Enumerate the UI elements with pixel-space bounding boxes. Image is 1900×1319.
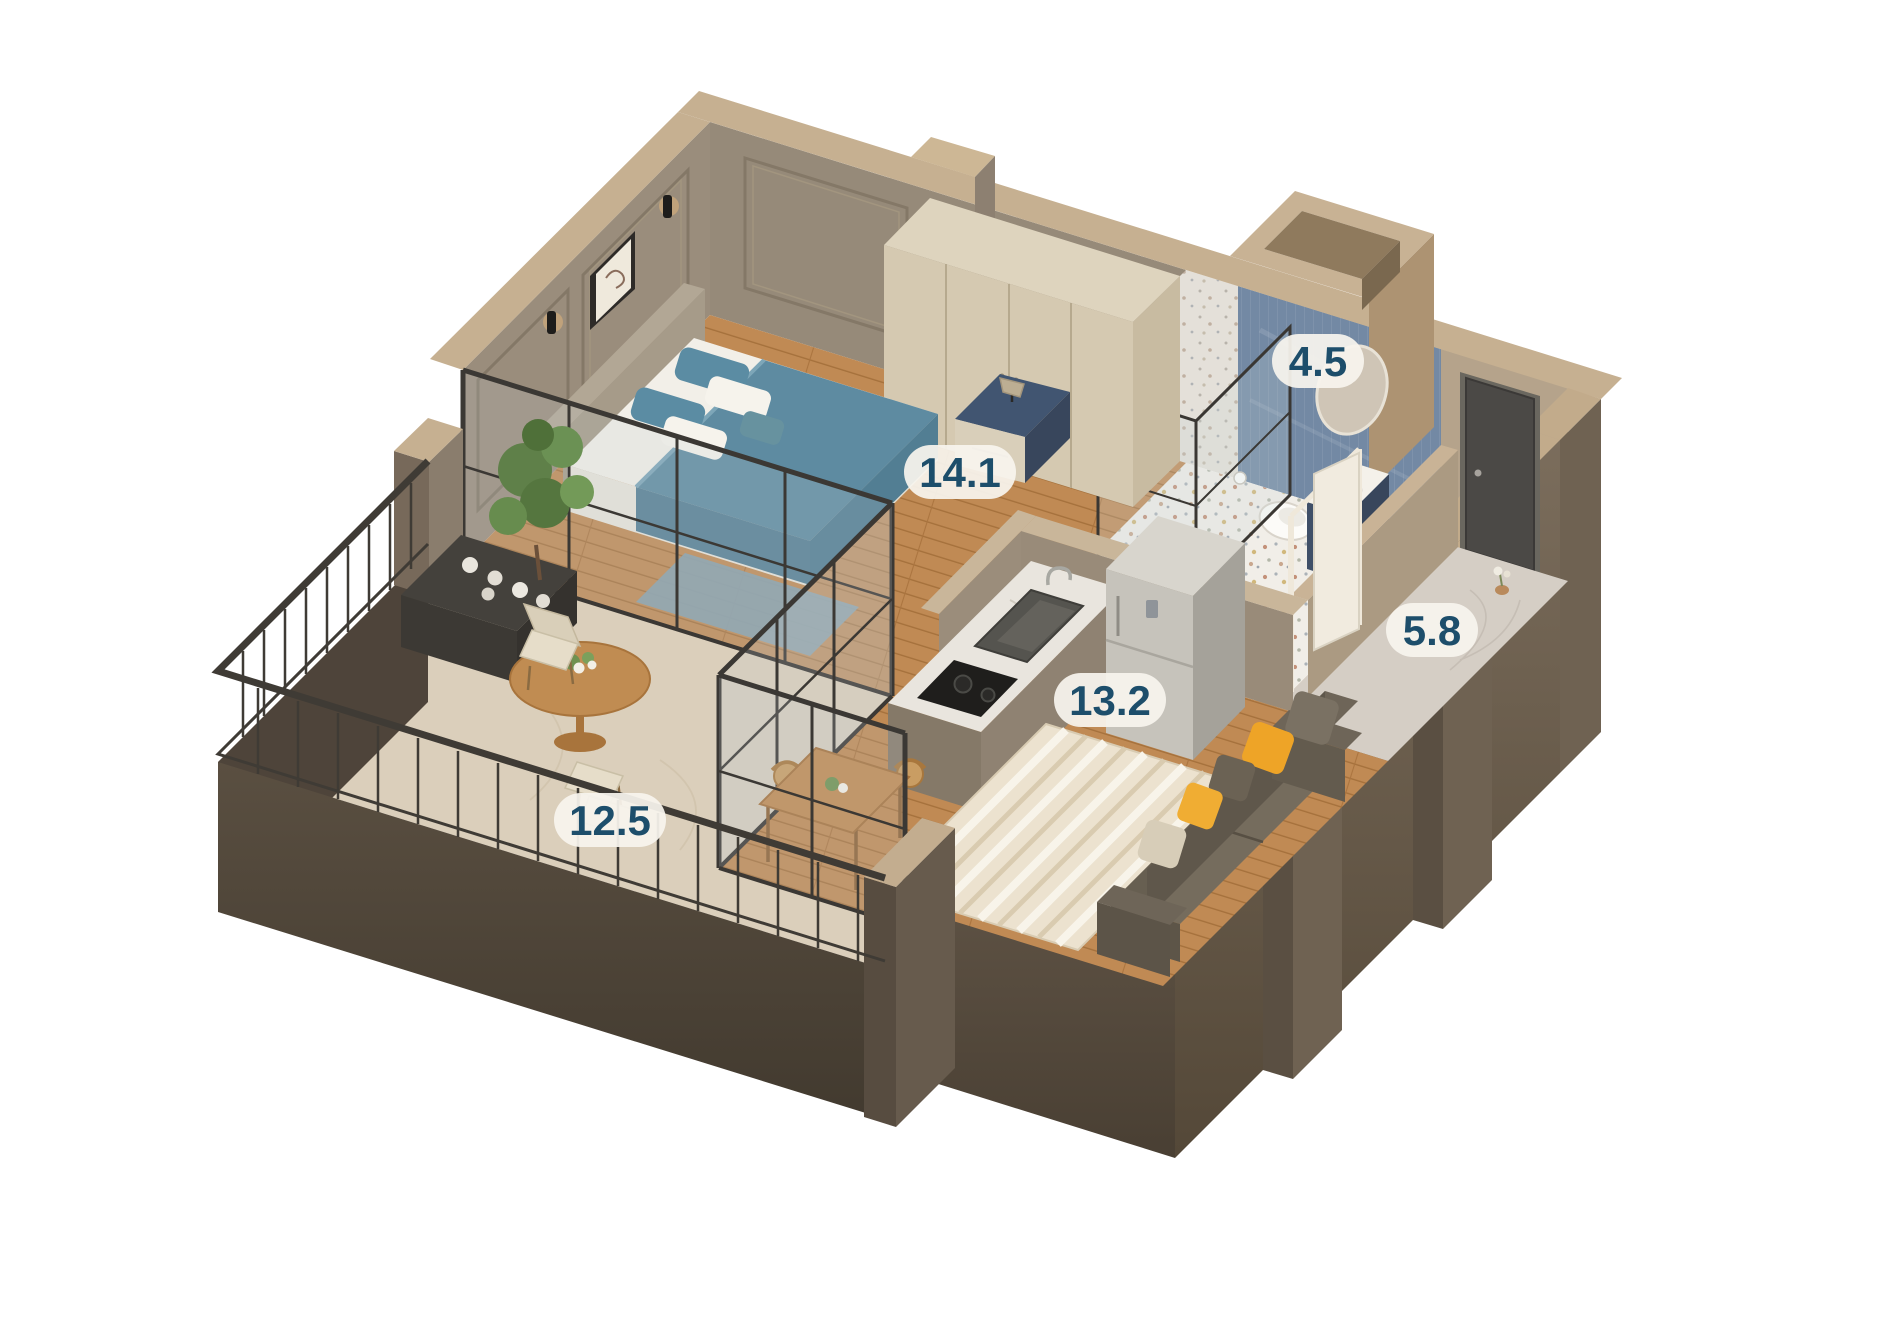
planter-stones — [462, 557, 478, 573]
burner-icon — [982, 689, 995, 702]
planter-stones — [512, 582, 528, 598]
burner-icon — [955, 676, 972, 693]
floor-plan-stage: 4.5 14.1 5.8 13.2 12.5 — [0, 0, 1900, 1319]
door-handle-icon — [1475, 470, 1482, 477]
fridge-display-icon — [1146, 600, 1158, 618]
hallway-area-value: 5.8 — [1403, 607, 1461, 654]
east-wall-corner-face — [1560, 399, 1601, 773]
planter-stones — [536, 594, 550, 608]
planter-stones — [488, 571, 503, 586]
balcony-area-value: 12.5 — [569, 797, 651, 844]
room-label-hallway: 5.8 — [1386, 603, 1478, 657]
room-label-kitchen-living: 13.2 — [1054, 673, 1166, 727]
flower-icon — [574, 663, 585, 674]
bathroom-area-value: 4.5 — [1289, 338, 1347, 385]
entry-door — [1460, 372, 1540, 577]
flower-icon — [588, 661, 597, 670]
kitchen-living-area-value: 13.2 — [1069, 677, 1151, 724]
room-label-balcony: 12.5 — [554, 793, 666, 847]
planter-stones — [482, 588, 495, 601]
bedroom-area-value: 14.1 — [919, 449, 1001, 496]
balcony-pier-east — [864, 818, 955, 1127]
floor-plan-render: 4.5 14.1 5.8 13.2 12.5 — [0, 0, 1900, 1319]
room-label-bathroom: 4.5 — [1272, 334, 1364, 388]
room-label-bedroom: 14.1 — [904, 445, 1016, 499]
